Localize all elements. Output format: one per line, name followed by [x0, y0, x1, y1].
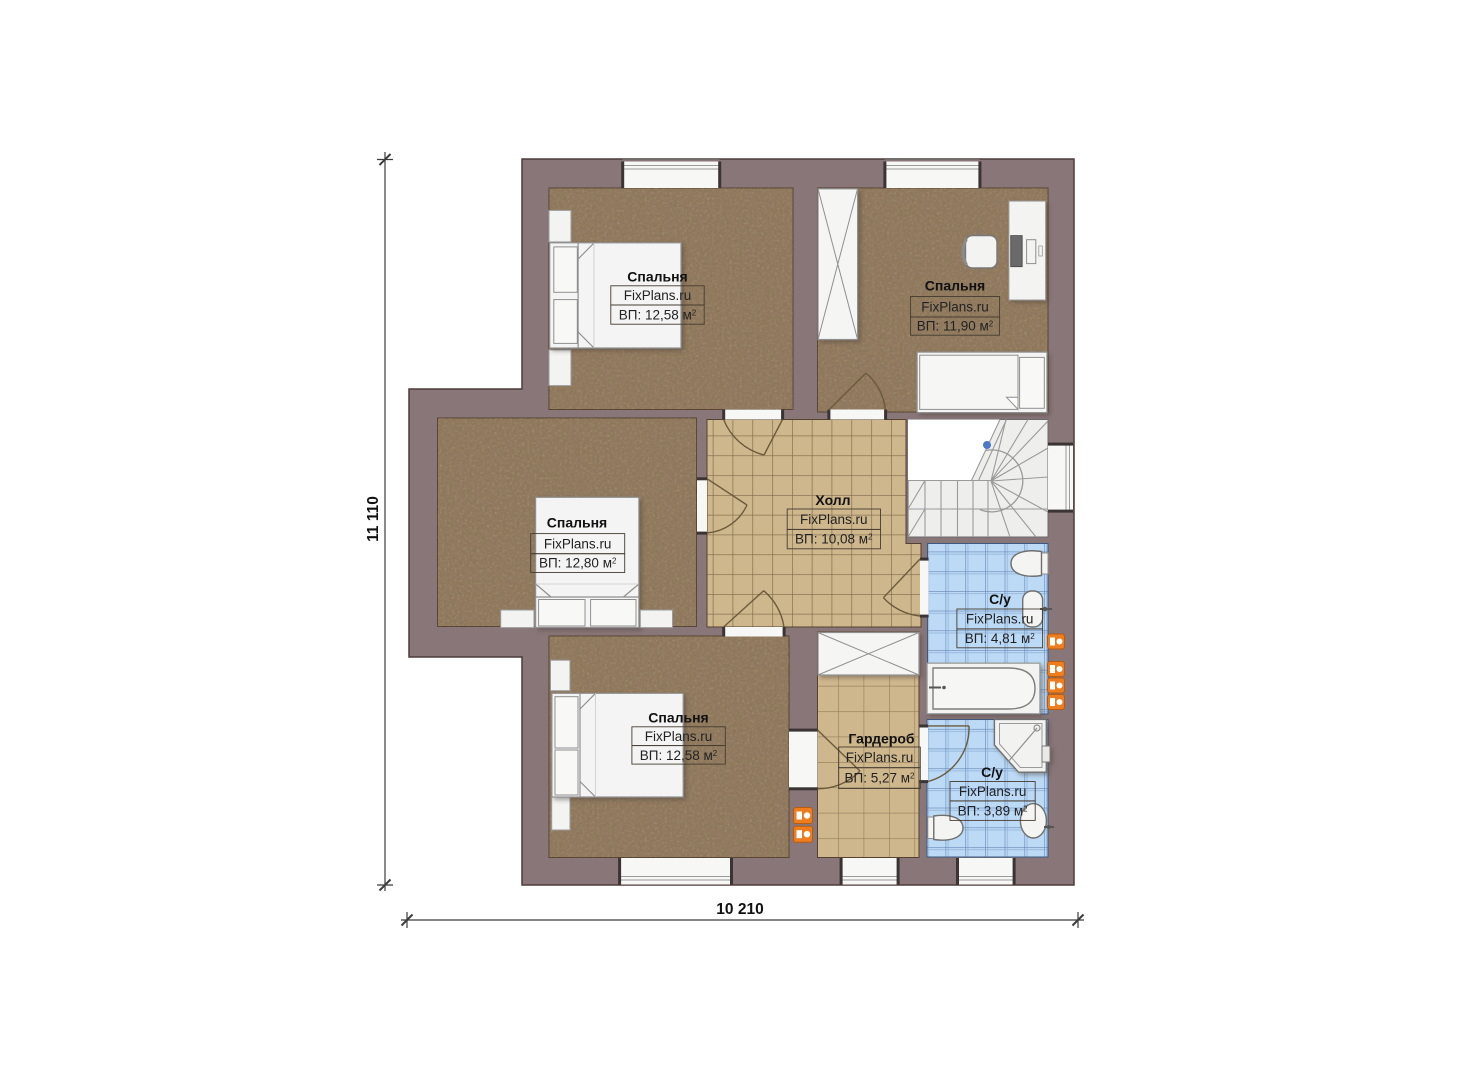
svg-text:Спальня: Спальня [627, 269, 687, 285]
svg-text:FixPlans.ru: FixPlans.ru [544, 537, 612, 552]
svg-text:С/у: С/у [989, 591, 1011, 607]
svg-text:ВП: 12,58 м2: ВП: 12,58 м2 [640, 748, 718, 763]
svg-text:ВП: 3,89 м2: ВП: 3,89 м2 [958, 804, 1029, 819]
svg-text:ВП: 11,90 м2: ВП: 11,90 м2 [917, 319, 994, 334]
svg-text:ВП: 12,58 м2: ВП: 12,58 м2 [619, 308, 697, 323]
svg-text:Спальня: Спальня [648, 710, 708, 726]
svg-text:Гардероб: Гардероб [848, 731, 915, 747]
svg-text:FixPlans.ru: FixPlans.ru [966, 612, 1034, 627]
svg-text:Холл: Холл [815, 492, 850, 508]
svg-text:Спальня: Спальня [925, 278, 985, 294]
svg-text:FixPlans.ru: FixPlans.ru [846, 750, 914, 765]
svg-text:11 110: 11 110 [365, 496, 382, 542]
svg-text:ВП: 5,27 м2: ВП: 5,27 м2 [845, 771, 916, 786]
svg-text:ВП: 10,08 м2: ВП: 10,08 м2 [795, 532, 873, 547]
svg-text:FixPlans.ru: FixPlans.ru [921, 300, 989, 315]
svg-text:С/у: С/у [981, 764, 1003, 780]
svg-text:10 210: 10 210 [716, 901, 763, 918]
svg-text:Спальня: Спальня [547, 515, 607, 531]
svg-text:ВП: 12,80 м2: ВП: 12,80 м2 [539, 556, 617, 571]
svg-text:FixPlans.ru: FixPlans.ru [800, 512, 868, 527]
svg-text:FixPlans.ru: FixPlans.ru [624, 288, 692, 303]
svg-text:FixPlans.ru: FixPlans.ru [959, 784, 1027, 799]
svg-text:FixPlans.ru: FixPlans.ru [645, 729, 713, 744]
svg-text:ВП: 4,81 м2: ВП: 4,81 м2 [965, 631, 1036, 646]
